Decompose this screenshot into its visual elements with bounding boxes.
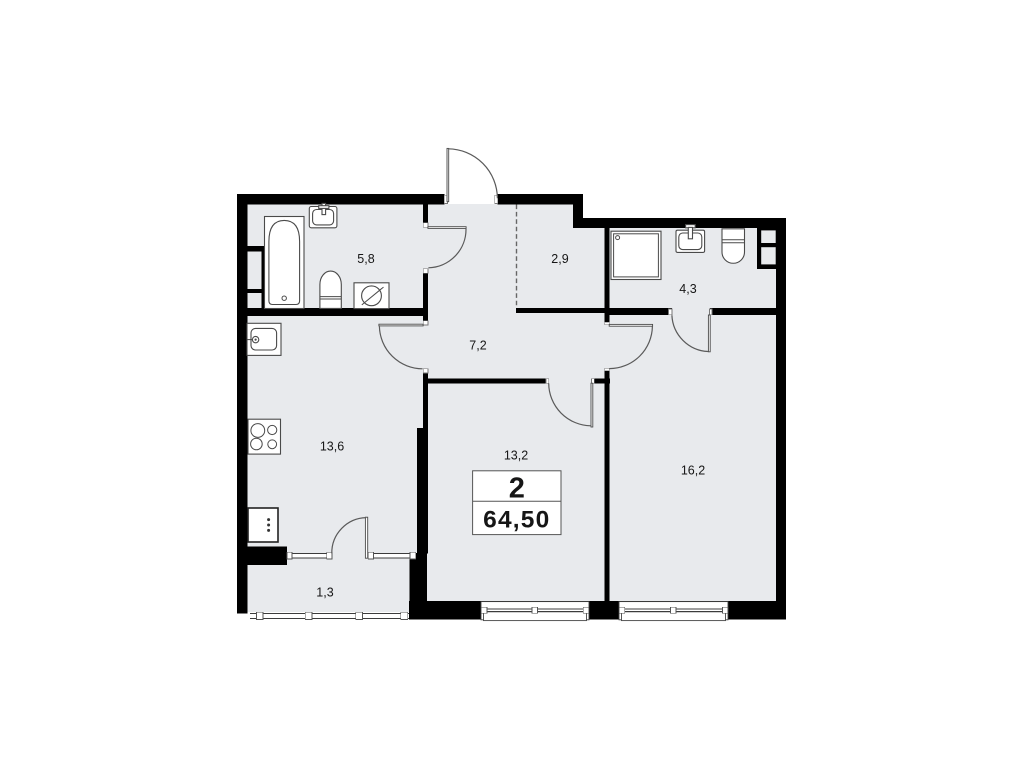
svg-text:13,6: 13,6 [320, 440, 344, 454]
svg-text:13,2: 13,2 [504, 449, 528, 463]
svg-text:5,8: 5,8 [357, 252, 374, 266]
svg-text:2,9: 2,9 [551, 252, 568, 266]
svg-text:2: 2 [509, 472, 525, 504]
svg-text:64,50: 64,50 [483, 507, 550, 534]
svg-text:16,2: 16,2 [681, 464, 705, 478]
svg-text:7,2: 7,2 [469, 339, 486, 353]
svg-text:4,3: 4,3 [679, 282, 696, 296]
svg-text:1,3: 1,3 [316, 586, 333, 600]
